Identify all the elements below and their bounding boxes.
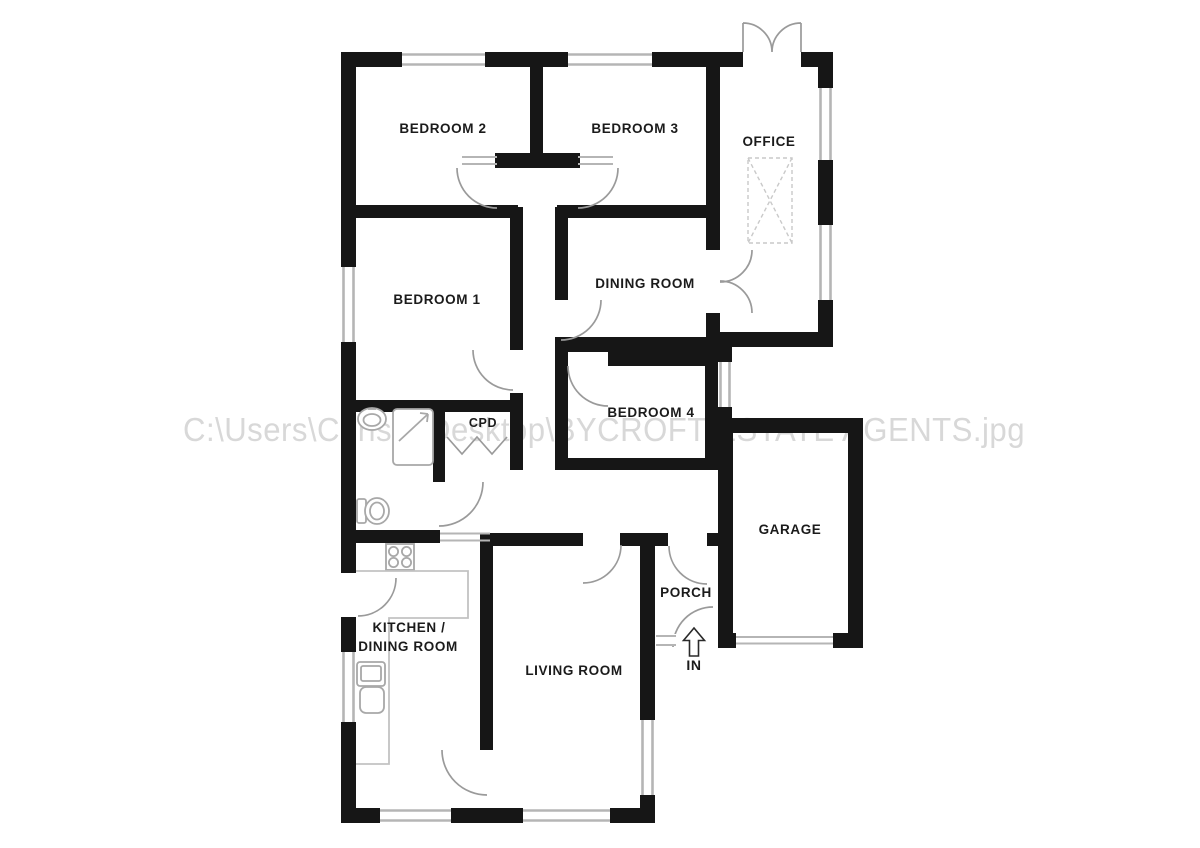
window-kitchen-side [341,652,356,722]
entrance-arrow-icon [684,628,705,656]
window-living-side [640,720,655,795]
door-bathroom [439,482,483,526]
room-label-living-room: LIVING ROOM [525,663,622,678]
window-kitchen-bottom [380,808,451,823]
watermark-text: C:\Users\Chris 3\Desktop\BYCROFT ESTATE … [183,411,1025,448]
window-office-upper [818,88,833,160]
room-label-kitchen-line2: DINING ROOM [358,639,458,654]
window-rear-lobby [718,362,732,407]
door-bedroom3 [578,168,618,208]
room-label-porch: PORCH [660,585,712,600]
kitchen-sink-icon [357,662,385,713]
door-bedroom1 [473,350,513,390]
door-bedroom4 [568,366,608,406]
room-label-bedroom2: BEDROOM 2 [399,121,486,136]
room-label-garage: GARAGE [759,522,822,537]
room-label-bedroom1: BEDROOM 1 [393,292,480,307]
window-bedroom2 [402,52,485,67]
door-bedroom2 [457,168,497,208]
floor-plan-svg: C:\Users\Chris 3\Desktop\BYCROFT ESTATE … [0,0,1200,848]
room-label-cpd: CPD [469,416,497,430]
room-label-kitchen-line1: KITCHEN / [373,620,446,635]
floor-plan-image: C:\Users\Chris 3\Desktop\BYCROFT ESTATE … [0,0,1200,848]
threshold-bedroom2 [462,157,497,164]
room-label-bedroom4: BEDROOM 4 [607,405,694,420]
window-bedroom3 [568,52,652,67]
door-kitchen-living [442,750,487,795]
door-living-room [583,545,621,583]
door-hall-to-porch [669,546,707,584]
double-door-office-exterior [743,23,801,52]
room-label-entrance-in: IN [686,657,701,673]
office-void-dashed-box [748,158,792,243]
window-bedroom1 [341,267,356,342]
bathroom-sink-icon [358,408,386,430]
door-dining-room [561,300,601,340]
threshold-bedroom3 [578,157,613,164]
room-labels: BEDROOM 2 BEDROOM 3 OFFICE BEDROOM 1 DIN… [358,121,821,678]
toilet-icon [357,498,389,524]
room-label-dining-room: DINING ROOM [595,276,695,291]
door-kitchen-side [358,578,396,616]
double-door-dining-to-office [720,250,752,313]
room-label-bedroom3: BEDROOM 3 [591,121,678,136]
garage-door [736,637,833,644]
stove-icon [386,544,414,570]
room-label-office: OFFICE [742,134,795,149]
window-living-bottom [523,808,610,823]
window-office-lower [818,225,833,300]
shower-icon [393,409,433,465]
